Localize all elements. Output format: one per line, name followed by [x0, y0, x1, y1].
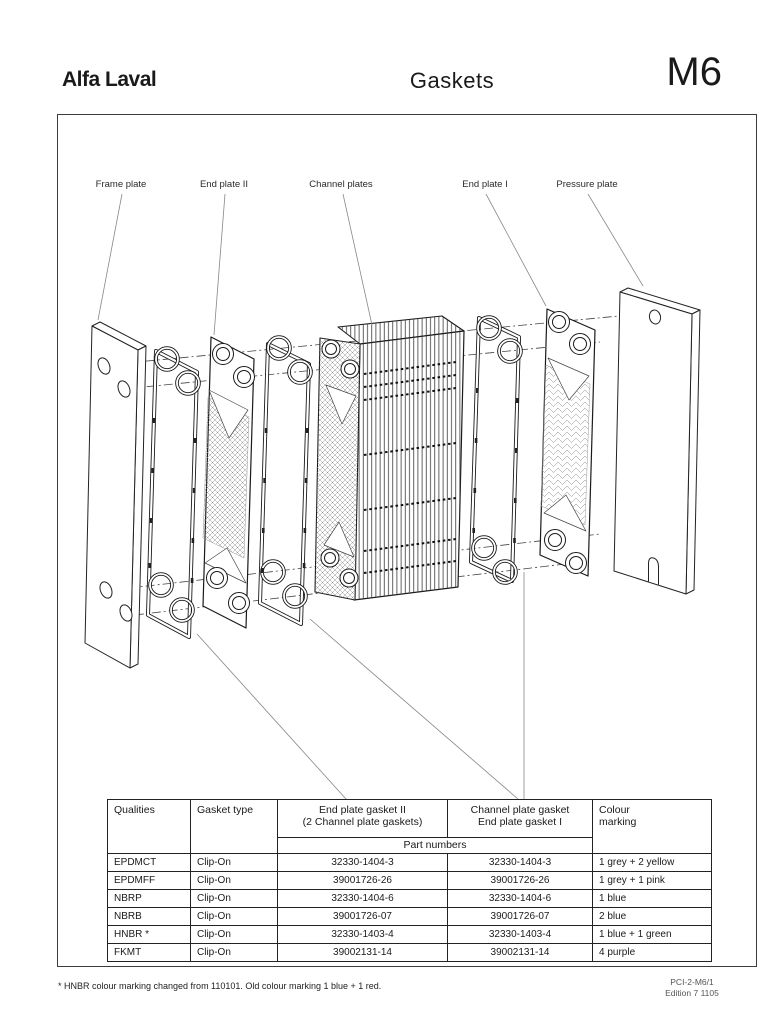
cell-gasket-type: Clip-On: [191, 890, 278, 908]
cell-part-ii: 32330-1404-3: [278, 854, 448, 872]
cell-colour: 1 blue: [593, 890, 712, 908]
header-end-plate-gasket-ii: End plate gasket II (2 Channel plate gas…: [278, 800, 448, 838]
cell-colour: 1 blue + 1 green: [593, 926, 712, 944]
table-row: FKMT Clip-On 39002131-14 39002131-14 4 p…: [108, 944, 712, 962]
cell-quality: NBRP: [108, 890, 191, 908]
cell-part-ii: 39001726-07: [278, 908, 448, 926]
cell-part-i: 32330-1404-3: [448, 854, 593, 872]
cell-quality: EPDMCT: [108, 854, 191, 872]
table-row: NBRB Clip-On 39001726-07 39001726-07 2 b…: [108, 908, 712, 926]
end-plate-gasket-ii-drawing: [148, 348, 199, 637]
header-col4-line2: End plate gasket I: [454, 816, 586, 828]
cell-gasket-type: Clip-On: [191, 854, 278, 872]
header-colour-line1: Colour: [599, 804, 705, 816]
table-header-row: Qualities Gasket type End plate gasket I…: [108, 800, 712, 838]
end-plate-i-drawing: [540, 309, 595, 576]
end-plate-ii-drawing: [203, 337, 255, 628]
header-qualities: Qualities: [108, 800, 191, 854]
cell-gasket-type: Clip-On: [191, 908, 278, 926]
cell-colour: 1 grey + 2 yellow: [593, 854, 712, 872]
doc-edition: Edition 7 1105: [632, 988, 752, 999]
gasket-part-table: Qualities Gasket type End plate gasket I…: [107, 799, 712, 962]
cell-part-ii: 39001726-26: [278, 872, 448, 890]
cell-gasket-type: Clip-On: [191, 926, 278, 944]
header-col4-line1: Channel plate gasket: [454, 804, 586, 816]
cell-part-i: 32330-1403-4: [448, 926, 593, 944]
header-col3-line2: (2 Channel plate gaskets): [284, 816, 441, 828]
frame-plate-drawing: [85, 322, 146, 668]
cell-quality: NBRB: [108, 908, 191, 926]
cell-part-ii: 39002131-14: [278, 944, 448, 962]
header-channel-plate-gasket: Channel plate gasket End plate gasket I: [448, 800, 593, 838]
hnbr-footnote: * HNBR colour marking changed from 11010…: [58, 981, 381, 991]
cell-quality: HNBR *: [108, 926, 191, 944]
cell-part-i: 32330-1404-6: [448, 890, 593, 908]
cell-gasket-type: Clip-On: [191, 872, 278, 890]
cell-part-i: 39002131-14: [448, 944, 593, 962]
document-reference: PCI-2-M6/1 Edition 7 1105: [632, 977, 752, 999]
end-plate-gasket-i-drawing: [471, 317, 521, 583]
cell-quality: FKMT: [108, 944, 191, 962]
cell-part-ii: 32330-1404-6: [278, 890, 448, 908]
header-gasket-type: Gasket type: [191, 800, 278, 854]
cell-colour: 1 grey + 1 pink: [593, 872, 712, 890]
cell-gasket-type: Clip-On: [191, 944, 278, 962]
cell-part-ii: 32330-1403-4: [278, 926, 448, 944]
doc-ref-code: PCI-2-M6/1: [632, 977, 752, 988]
gasket-clip-tabs: [149, 418, 197, 583]
header-col3-line1: End plate gasket II: [284, 804, 441, 816]
cell-part-i: 39001726-26: [448, 872, 593, 890]
table-row: EPDMFF Clip-On 39001726-26 39001726-26 1…: [108, 872, 712, 890]
header-colour-line2: marking: [599, 816, 705, 828]
table-row: NBRP Clip-On 32330-1404-6 32330-1404-6 1…: [108, 890, 712, 908]
document-page: Alfa Laval Gaskets M6 Frame plate End pl…: [0, 0, 768, 1024]
pressure-plate-drawing: [614, 288, 700, 594]
header-colour-marking: Colour marking: [593, 800, 712, 854]
cell-colour: 4 purple: [593, 944, 712, 962]
cell-part-i: 39001726-07: [448, 908, 593, 926]
cell-colour: 2 blue: [593, 908, 712, 926]
table-row: EPDMCT Clip-On 32330-1404-3 32330-1404-3…: [108, 854, 712, 872]
table-row: HNBR * Clip-On 32330-1403-4 32330-1403-4…: [108, 926, 712, 944]
channel-plates-drawing: [315, 316, 464, 600]
channel-plate-gasket-drawing: [260, 337, 311, 624]
cell-quality: EPDMFF: [108, 872, 191, 890]
header-part-numbers: Part numbers: [278, 838, 593, 854]
